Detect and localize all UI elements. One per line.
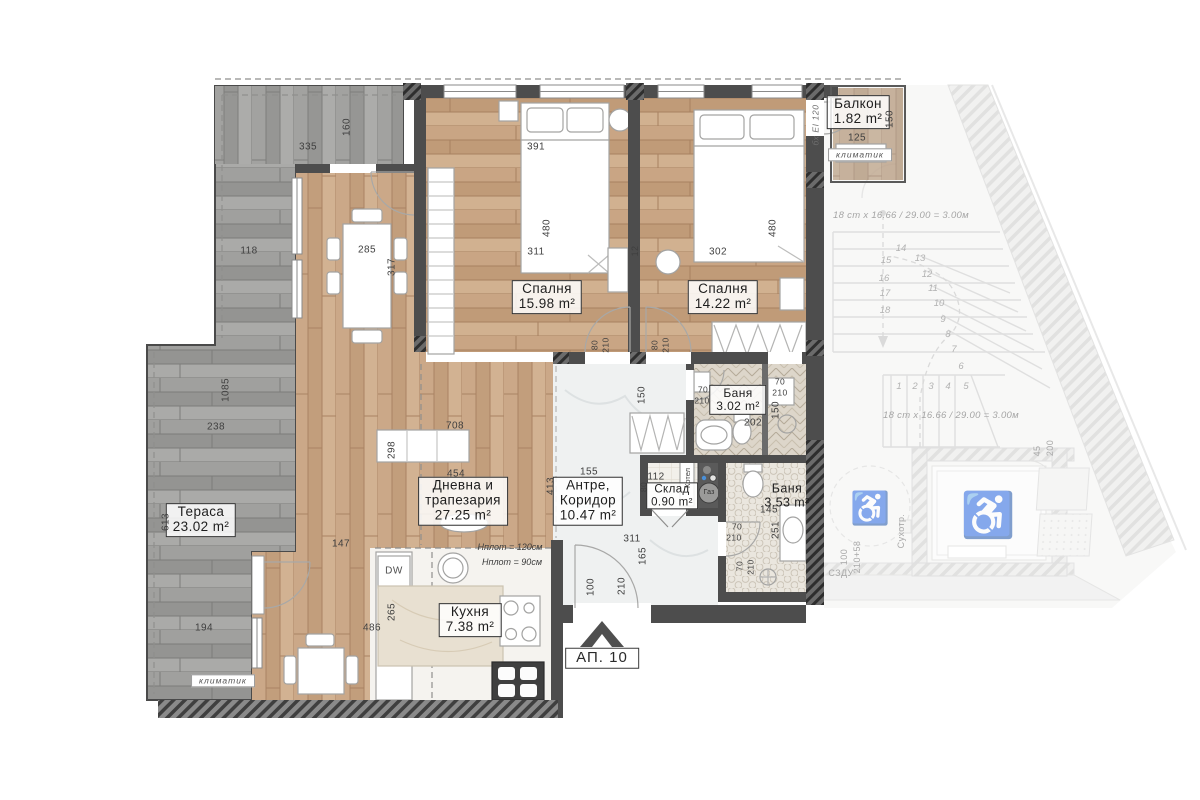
vanity-sink: [780, 505, 806, 561]
nightstand: [656, 250, 680, 274]
bed: [694, 110, 804, 262]
toilet: [743, 464, 763, 497]
floor-plan-canvas: ♿ ♿: [0, 0, 1200, 800]
bed: [521, 103, 609, 273]
nightstand: [499, 101, 518, 121]
sink-cabinet: [694, 372, 710, 392]
bathtub: [696, 420, 732, 450]
tv-unit: [377, 430, 469, 462]
boiler-shelf: [680, 458, 694, 506]
hall-wardrobe: [630, 413, 685, 453]
toilet: [733, 414, 751, 444]
wheelchair-icon: ♿: [850, 490, 890, 526]
nightstand: [609, 109, 631, 131]
gas-boiler-block: [698, 460, 720, 510]
wheelchair-icon: ♿: [961, 490, 1016, 540]
floor-plan-drawing: ♿ ♿: [0, 0, 1200, 800]
storeroom: [1037, 514, 1092, 556]
ac-unit-frame: [836, 144, 886, 162]
kitchen-appliance-column: [492, 662, 544, 700]
wardrobe: [608, 248, 628, 292]
desk: [780, 278, 804, 310]
closet-shelves: [428, 168, 454, 354]
terrace-floor-top: [215, 86, 403, 164]
coffee-table: [440, 514, 488, 532]
storeroom: [1036, 468, 1089, 510]
washing-machine: [768, 378, 794, 405]
